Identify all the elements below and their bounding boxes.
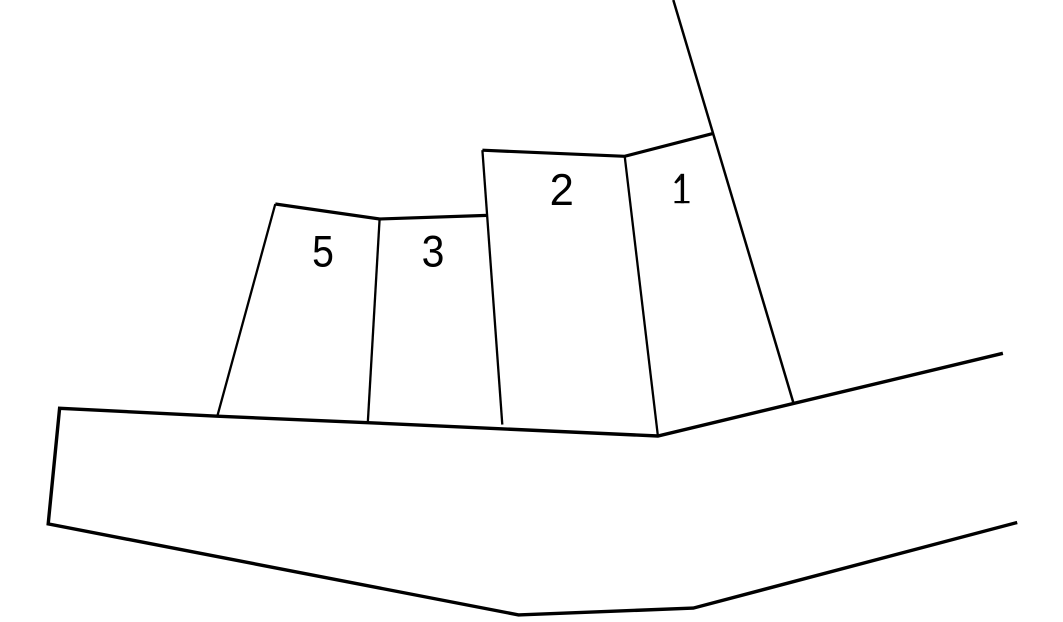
- svg-text:2: 2: [550, 166, 574, 215]
- svg-text:3: 3: [422, 227, 445, 277]
- svg-text:5: 5: [312, 226, 334, 276]
